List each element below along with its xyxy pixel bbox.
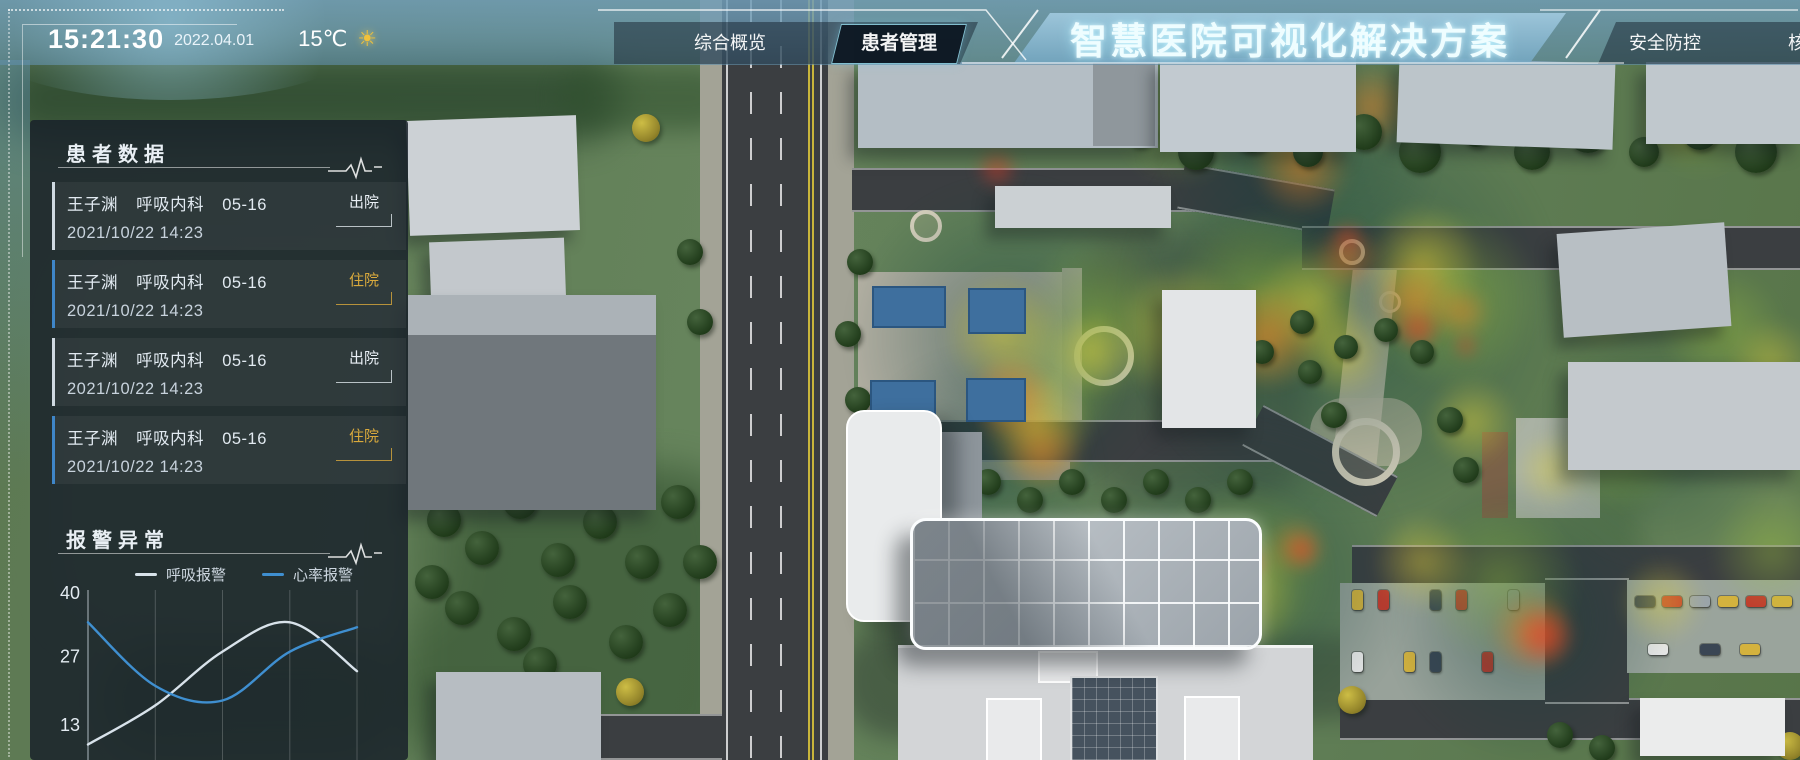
ecg-pulse-icon [328, 542, 382, 566]
tree [1374, 318, 1398, 342]
roof-pad [1040, 653, 1096, 681]
map-building [1160, 58, 1356, 152]
tree [847, 249, 873, 275]
map-building [1557, 222, 1732, 337]
tree [1410, 340, 1434, 364]
tree [1059, 469, 1085, 495]
section-underline [58, 553, 330, 554]
svg-text:13: 13 [60, 715, 80, 735]
map-building [1397, 56, 1616, 149]
tree [1334, 335, 1358, 359]
badge-underline [336, 214, 392, 227]
dotted-line-left [8, 9, 10, 757]
tree [583, 505, 617, 539]
tree [1227, 469, 1253, 495]
tree [1298, 360, 1322, 384]
tree [632, 114, 660, 142]
lane-dash-line [780, 0, 782, 760]
heatmap-blob [1512, 604, 1576, 668]
selected-hospital-building[interactable] [910, 518, 1262, 650]
tree [497, 617, 531, 651]
map-building [995, 186, 1171, 228]
tree [661, 485, 695, 519]
map-building [429, 238, 566, 301]
car [1740, 644, 1760, 655]
ecg-pulse-icon [328, 156, 382, 180]
double-yellow-line [808, 0, 814, 760]
map-building [1162, 290, 1256, 428]
svg-text:40: 40 [60, 583, 80, 603]
sidewalk [700, 0, 722, 760]
patient-status-text: 出院 [349, 350, 379, 367]
legend-line-marker [135, 573, 157, 576]
patient-bed: 05-16 [222, 352, 267, 370]
roof-pad [988, 700, 1040, 760]
svg-text:27: 27 [60, 647, 80, 667]
tree [541, 543, 575, 577]
patient-status-badge: 住院 [336, 425, 392, 461]
tree [1185, 487, 1211, 513]
heatmap-blob [974, 145, 1020, 191]
sun-icon: ☀ [357, 26, 377, 52]
patient-list-item[interactable]: 王子渊 呼吸内科 05-16 2021/10/22 14:23 住院 [52, 260, 406, 328]
lane-dash-line [750, 0, 752, 760]
roof-pad [1186, 698, 1238, 760]
glass-atrium [1072, 678, 1156, 760]
tree [616, 678, 644, 706]
smart-hospital-dashboard: 15:21:30 2022.04.01 15℃ ☀ 综合概览 患者管理 智慧医院… [0, 0, 1800, 760]
tree [1453, 457, 1479, 483]
patient-status-text: 出院 [349, 194, 379, 211]
road-vertical [722, 0, 828, 760]
map-building [408, 295, 656, 335]
building-shadow-overlay [913, 521, 1259, 647]
map-building [1093, 58, 1155, 146]
tree [1101, 487, 1127, 513]
pavilion-roof [968, 288, 1026, 334]
tree [1017, 487, 1043, 513]
heatmap-blob [1285, 533, 1319, 567]
badge-underline [336, 448, 392, 461]
temperature-value: 15℃ [298, 26, 347, 52]
pavilion-roof [966, 378, 1026, 422]
tree [687, 309, 713, 335]
alarm-line-chart: 402713 [30, 582, 408, 760]
tree [835, 321, 861, 347]
tab-security[interactable]: 安全防控 [1595, 24, 1735, 62]
badge-underline [336, 292, 392, 305]
tab-patient-management[interactable]: 患者管理 [831, 24, 967, 64]
page-title: 智慧医院可视化解决方案 [1070, 11, 1510, 65]
heatmap-blob [1331, 221, 1365, 255]
patient-status-text: 住院 [349, 272, 379, 289]
tree [677, 239, 703, 265]
patient-bed: 05-16 [222, 430, 267, 448]
pavilion-roof [872, 286, 946, 328]
dotted-line-top [8, 9, 284, 11]
map-building [406, 115, 580, 236]
tab-patient-management-label: 患者管理 [837, 25, 961, 63]
patient-name: 王子渊 [67, 352, 118, 370]
tree [625, 545, 659, 579]
map-building [1568, 362, 1800, 470]
tree [1547, 722, 1573, 748]
tree [683, 545, 717, 579]
car [1700, 644, 1720, 655]
tab-clipped-right[interactable]: 核 [1772, 24, 1800, 62]
flat-building [898, 645, 1313, 760]
alarm-section-title: 报警异常 [66, 524, 170, 553]
badge-underline [336, 370, 392, 383]
patient-status-badge: 住院 [336, 269, 392, 305]
tree [553, 585, 587, 619]
tree [1143, 469, 1169, 495]
clock-corner-bracket [22, 24, 237, 257]
heatmap-blob [1452, 332, 1480, 360]
tree [1437, 407, 1463, 433]
tree [653, 593, 687, 627]
heatmap-blob [1616, 556, 1708, 648]
patient-bed: 05-16 [222, 274, 267, 292]
road-edge-line [726, 0, 728, 760]
patient-status-text: 住院 [349, 428, 379, 445]
patient-name: 王子渊 [67, 430, 118, 448]
patient-list-item[interactable]: 王子渊 呼吸内科 05-16 2021/10/22 14:23 住院 [52, 416, 406, 484]
road-edge-line [820, 0, 822, 760]
tree [445, 591, 479, 625]
patient-list-item[interactable]: 王子渊 呼吸内科 05-16 2021/10/22 14:23 出院 [52, 338, 406, 406]
tab-overview[interactable]: 综合概览 [660, 24, 800, 62]
map-building [1646, 62, 1800, 144]
tree [465, 531, 499, 565]
tree [1589, 735, 1615, 760]
legend-line-marker [262, 573, 284, 576]
patient-name: 王子渊 [67, 274, 118, 292]
heatmap-blob [1050, 310, 1134, 394]
tree [415, 565, 449, 599]
tree [1321, 402, 1347, 428]
patient-department: 呼吸内科 [136, 352, 204, 370]
patient-status-badge: 出院 [336, 191, 392, 227]
heatmap-blob [1370, 510, 1474, 614]
map-building [436, 672, 601, 760]
patient-status-badge: 出院 [336, 347, 392, 383]
title-banner: 智慧医院可视化解决方案 [1014, 13, 1566, 63]
patient-department: 呼吸内科 [136, 430, 204, 448]
tree [1290, 310, 1314, 334]
tree [1338, 686, 1366, 714]
tree [609, 625, 643, 659]
map-building [1640, 698, 1785, 756]
patient-department: 呼吸内科 [136, 274, 204, 292]
